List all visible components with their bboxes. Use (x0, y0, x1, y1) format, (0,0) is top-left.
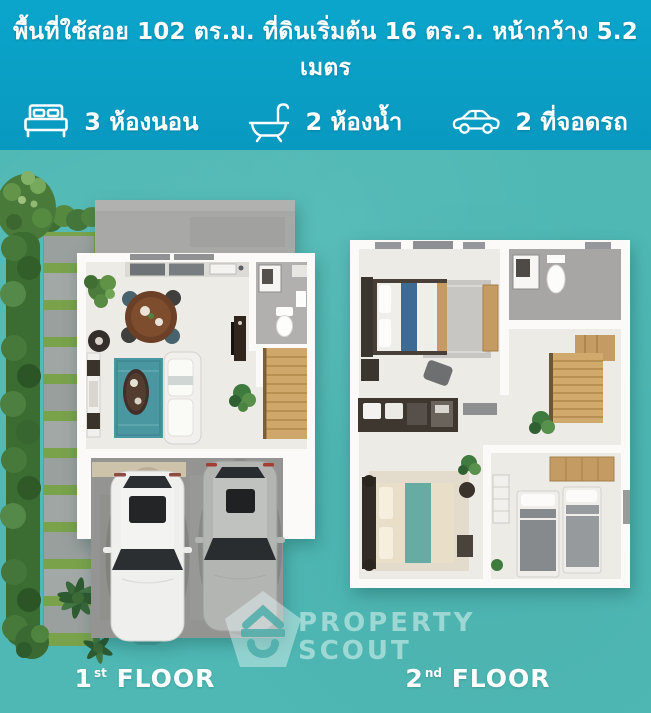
second-floor-word: FLOOR (452, 664, 551, 693)
white-car (103, 467, 192, 645)
bathrooms-label: 2 ห้องน้ำ (305, 102, 402, 141)
first-floor-label: 1st FLOOR (40, 664, 250, 693)
bed-icon (23, 103, 69, 139)
kitchen-counter (125, 262, 249, 277)
first-floor-word: FLOOR (117, 664, 216, 693)
bathroom-first-floor (249, 262, 307, 351)
first-floor-ordinal: st (94, 666, 107, 680)
second-floor-label: 2nd FLOOR (373, 664, 583, 693)
second-floor-number: 2 (405, 664, 424, 693)
bedroom-divider-wall (500, 240, 509, 395)
watermark-wordmark: PROPERTY SCOUT (298, 609, 475, 665)
hedge-column (0, 232, 41, 646)
bedroom-master (362, 455, 481, 571)
bathroom-second-floor (509, 249, 621, 320)
first-floor-number: 1 (75, 664, 94, 693)
propertyscout-logo-icon (222, 588, 304, 670)
driveway-concrete (95, 200, 295, 258)
watermark-line2: SCOUT (298, 637, 475, 665)
bedroom-twin (483, 445, 627, 588)
side-table-lamp (88, 330, 110, 352)
stair-wall (256, 351, 263, 387)
second-floor-ordinal: nd (425, 666, 442, 680)
feature-row: 3 ห้องนอน 2 ห้องน้ำ (0, 99, 651, 143)
bathroom-wall (500, 320, 621, 329)
parking-label: 2 ที่จอดรถ (515, 102, 627, 141)
tree (0, 171, 56, 242)
feature-parking: 2 ที่จอดรถ (452, 102, 627, 141)
feature-bedrooms: 3 ห้องนอน (23, 102, 198, 141)
stairs-first-floor (263, 348, 307, 439)
listing-graphic: พื้นที่ใช้สอย 102 ตร.ม. ที่ดินเริ่มต้น 1… (0, 0, 651, 713)
coffee-table (123, 369, 149, 415)
second-floor-plan (345, 235, 635, 595)
header-banner: พื้นที่ใช้สอย 102 ตร.ม. ที่ดินเริ่มต้น 1… (0, 0, 651, 150)
first-floor-plan (70, 195, 320, 645)
tv-sideboard (87, 353, 100, 437)
car-icon (452, 105, 500, 137)
sofa (164, 352, 201, 444)
tv-console (231, 316, 246, 361)
feature-bathrooms: 2 ห้องน้ำ (248, 99, 402, 143)
watermark-line1: PROPERTY (298, 609, 475, 637)
bathtub-icon (248, 99, 290, 143)
property-specs-title: พื้นที่ใช้สอย 102 ตร.ม. ที่ดินเริ่มต้น 1… (0, 14, 651, 86)
dining-table (121, 290, 181, 344)
bedrooms-label: 3 ห้องนอน (84, 102, 198, 141)
